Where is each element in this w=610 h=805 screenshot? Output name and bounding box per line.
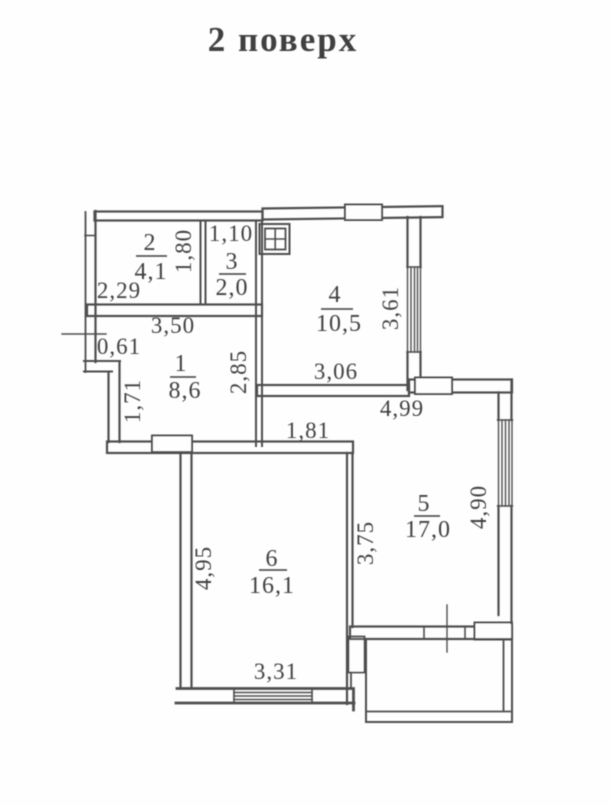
svg-text:3,61: 3,61 bbox=[378, 286, 403, 330]
svg-text:3: 3 bbox=[226, 249, 239, 275]
svg-text:16,1: 16,1 bbox=[249, 573, 295, 599]
svg-text:1: 1 bbox=[175, 351, 188, 377]
svg-text:3,50: 3,50 bbox=[151, 313, 195, 338]
svg-text:3,06: 3,06 bbox=[314, 359, 358, 384]
svg-text:2,85: 2,85 bbox=[226, 350, 251, 394]
svg-text:1,10: 1,10 bbox=[209, 221, 253, 246]
svg-text:4,99: 4,99 bbox=[380, 396, 424, 421]
svg-text:5: 5 bbox=[418, 491, 431, 517]
svg-text:2,0: 2,0 bbox=[216, 275, 249, 301]
svg-text:10,5: 10,5 bbox=[316, 311, 362, 337]
svg-text:4,95: 4,95 bbox=[191, 546, 216, 590]
svg-text:0,61: 0,61 bbox=[97, 334, 141, 359]
svg-text:4,90: 4,90 bbox=[466, 485, 491, 529]
svg-text:3,31: 3,31 bbox=[254, 659, 298, 684]
svg-text:2: 2 bbox=[144, 230, 157, 256]
svg-text:2 поверх: 2 поверх bbox=[208, 20, 358, 59]
svg-text:2,29: 2,29 bbox=[97, 278, 141, 303]
svg-text:4: 4 bbox=[329, 282, 342, 308]
svg-text:8,6: 8,6 bbox=[169, 378, 202, 404]
svg-text:3,75: 3,75 bbox=[353, 521, 378, 565]
svg-text:1,81: 1,81 bbox=[286, 418, 330, 443]
svg-text:6: 6 bbox=[266, 546, 279, 572]
svg-text:1,71: 1,71 bbox=[120, 379, 145, 423]
svg-text:1,80: 1,80 bbox=[171, 229, 196, 273]
svg-text:17,0: 17,0 bbox=[405, 517, 451, 543]
